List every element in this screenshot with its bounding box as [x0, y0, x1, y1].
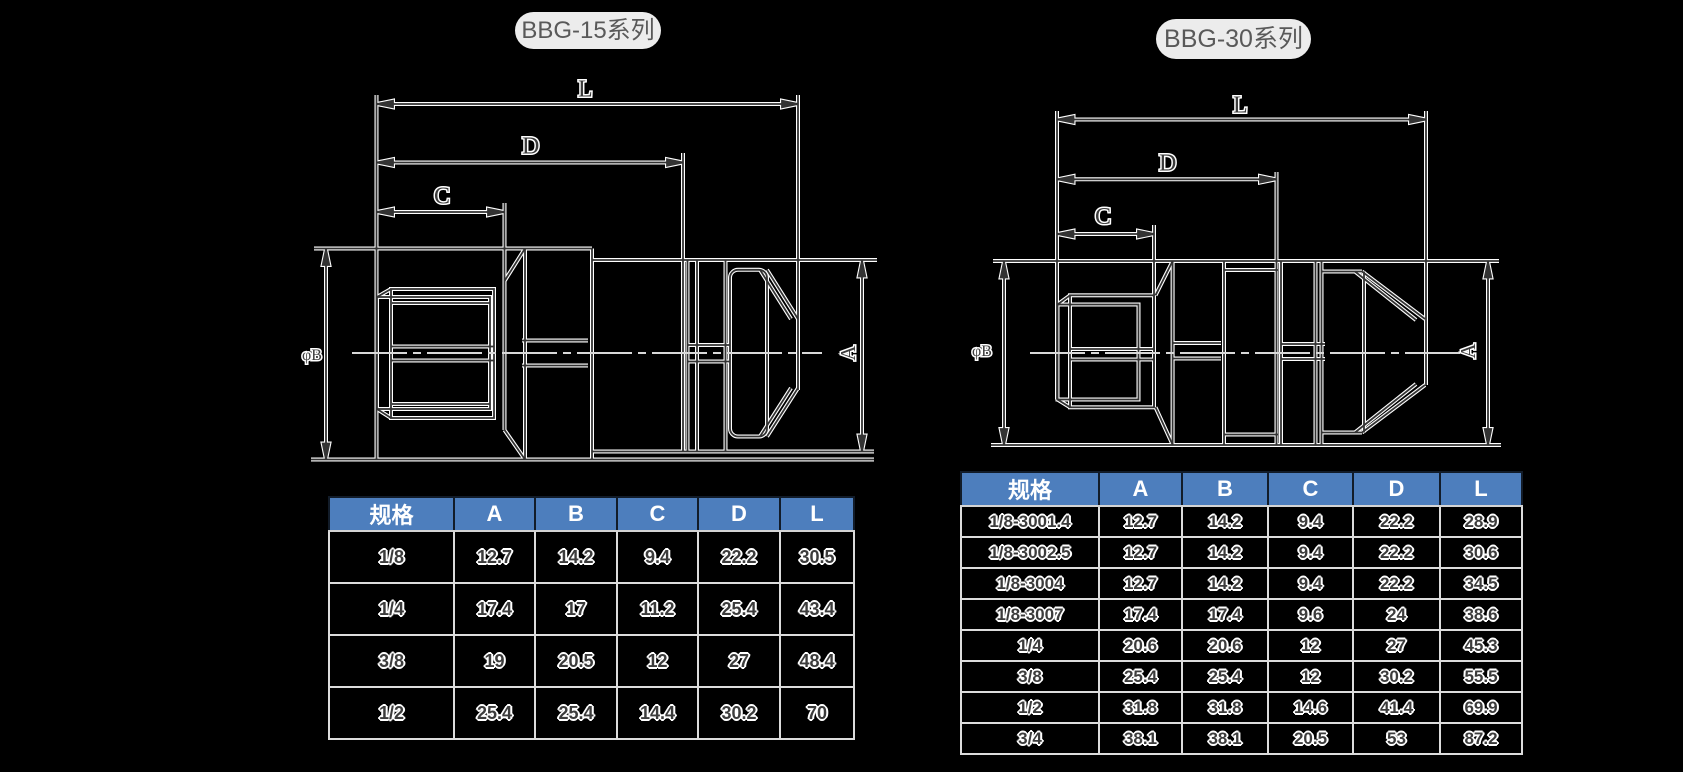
svg-text:A: A [1456, 343, 1480, 359]
svg-text:L: L [1233, 93, 1248, 119]
svg-text:L: L [578, 77, 593, 103]
svg-text:D: D [522, 134, 539, 160]
svg-text:C: C [434, 184, 450, 210]
svg-text:D: D [1159, 151, 1176, 177]
svg-text:A: A [836, 345, 860, 361]
svg-text:C: C [1095, 204, 1111, 230]
svg-text:φB: φB [972, 343, 992, 360]
svg-text:φB: φB [302, 347, 322, 364]
